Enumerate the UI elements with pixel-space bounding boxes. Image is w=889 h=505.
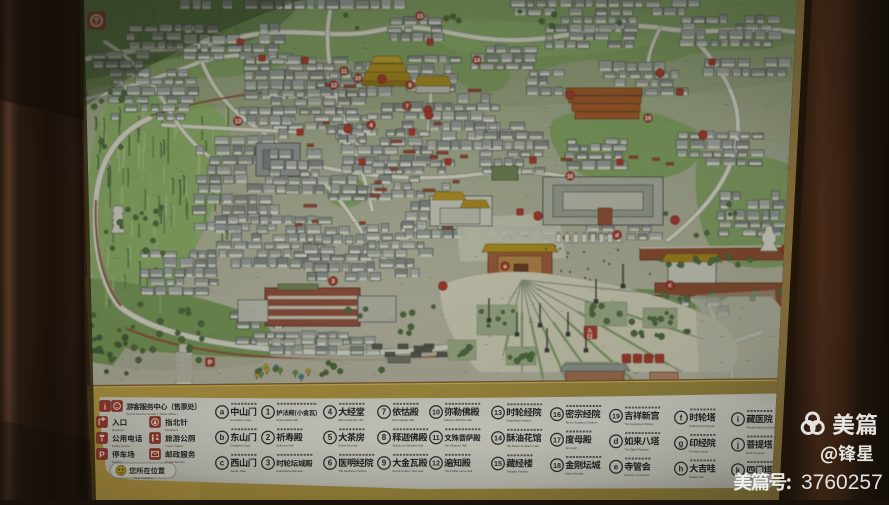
svg-text:3760257: 3760257 — [801, 471, 883, 494]
